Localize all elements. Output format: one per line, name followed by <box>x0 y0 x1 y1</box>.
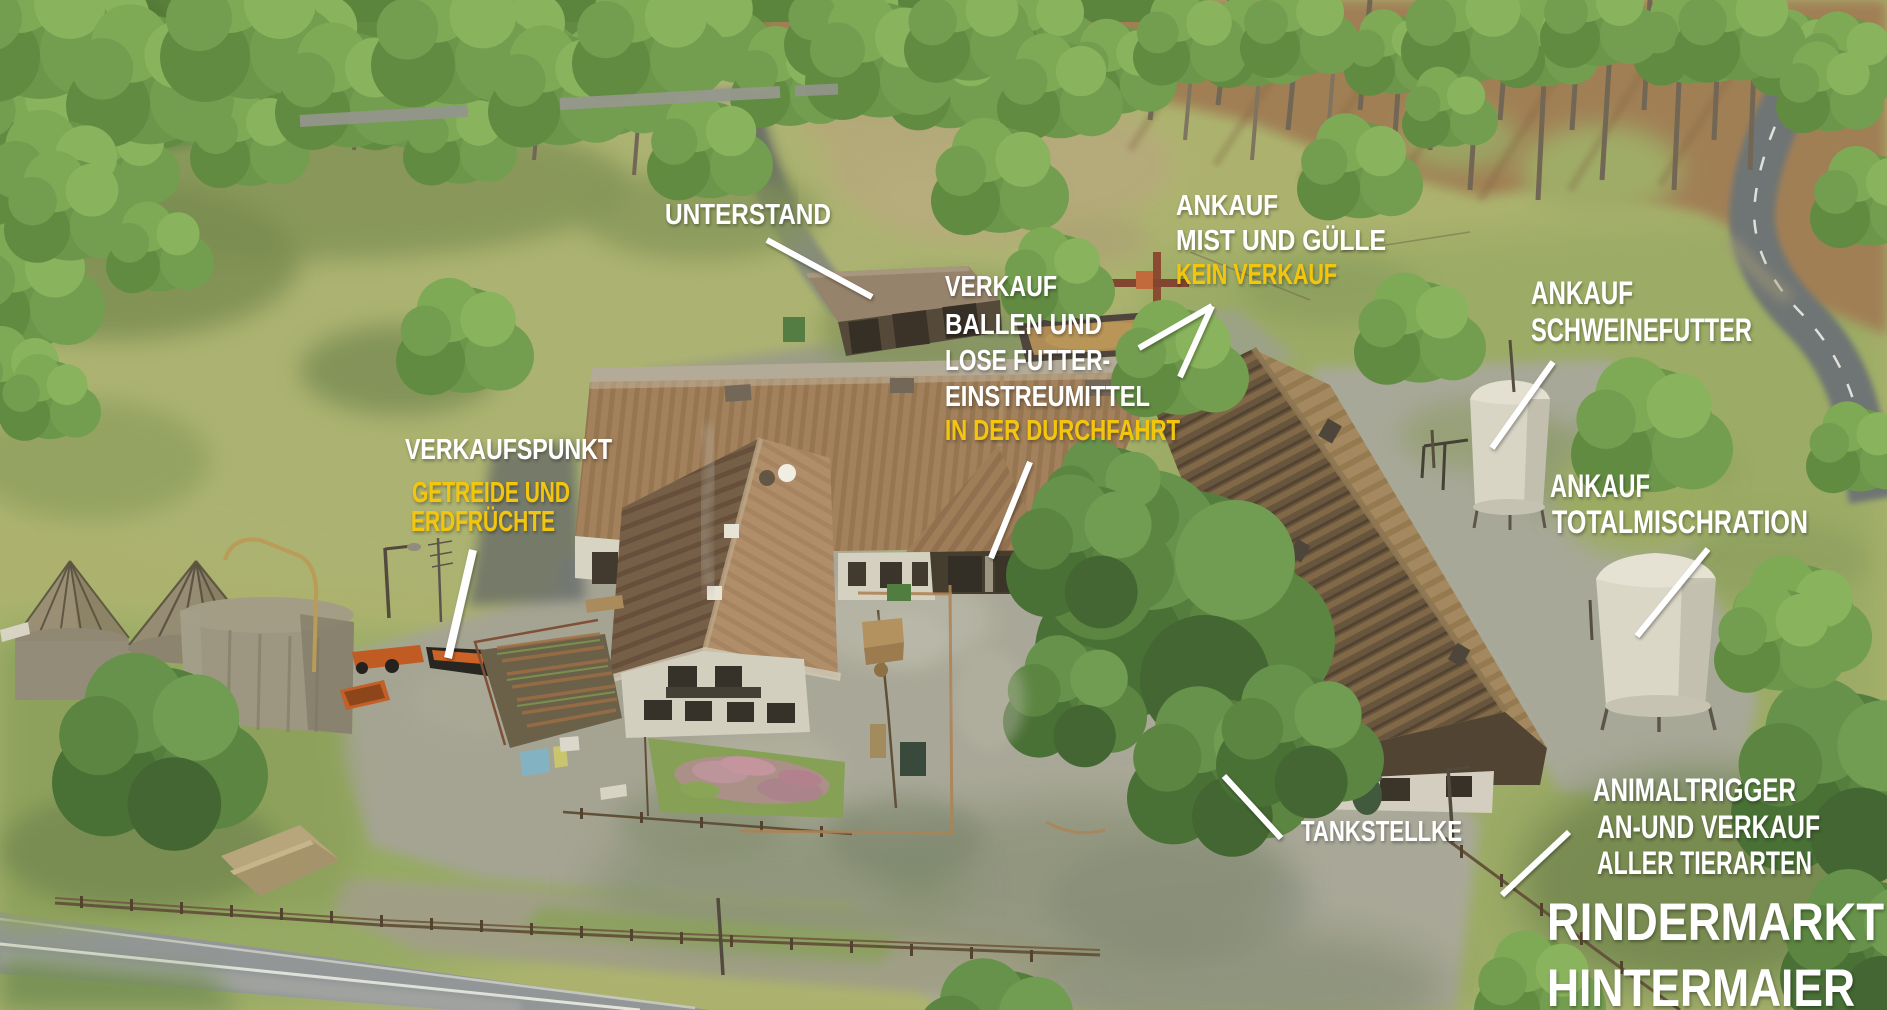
svg-text:LOSE FUTTER-: LOSE FUTTER- <box>945 345 1110 377</box>
svg-text:KEIN VERKAUF: KEIN VERKAUF <box>1176 259 1337 291</box>
svg-text:AN-UND VERKAUF: AN-UND VERKAUF <box>1597 809 1820 845</box>
svg-text:TANKSTELLKE: TANKSTELLKE <box>1301 816 1462 848</box>
svg-text:ALLER TIERARTEN: ALLER TIERARTEN <box>1597 845 1812 881</box>
svg-text:SCHWEINEFUTTER: SCHWEINEFUTTER <box>1531 312 1752 348</box>
svg-text:ANKAUF: ANKAUF <box>1176 190 1278 222</box>
svg-text:MIST UND GÜLLE: MIST UND GÜLLE <box>1176 224 1386 257</box>
svg-text:ANIMALTRIGGER: ANIMALTRIGGER <box>1593 772 1796 808</box>
svg-text:TOTALMISCHRATION: TOTALMISCHRATION <box>1552 504 1808 540</box>
svg-text:RINDERMARKT: RINDERMARKT <box>1547 893 1884 952</box>
svg-text:HINTERMAIER: HINTERMAIER <box>1547 959 1855 1010</box>
svg-text:ANKAUF: ANKAUF <box>1531 275 1633 311</box>
svg-text:IN DER DURCHFAHRT: IN DER DURCHFAHRT <box>945 415 1180 447</box>
svg-text:UNTERSTAND: UNTERSTAND <box>665 199 831 231</box>
svg-text:VERKAUFSPUNKT: VERKAUFSPUNKT <box>405 434 612 466</box>
svg-text:EINSTREUMITTEL: EINSTREUMITTEL <box>945 381 1150 413</box>
svg-text:GETREIDE UND: GETREIDE UND <box>412 477 570 509</box>
svg-text:BALLEN UND: BALLEN UND <box>945 309 1102 341</box>
svg-text:ERDFRÜCHTE: ERDFRÜCHTE <box>411 505 555 538</box>
svg-text:VERKAUF: VERKAUF <box>945 271 1057 303</box>
svg-text:ANKAUF: ANKAUF <box>1550 468 1650 504</box>
